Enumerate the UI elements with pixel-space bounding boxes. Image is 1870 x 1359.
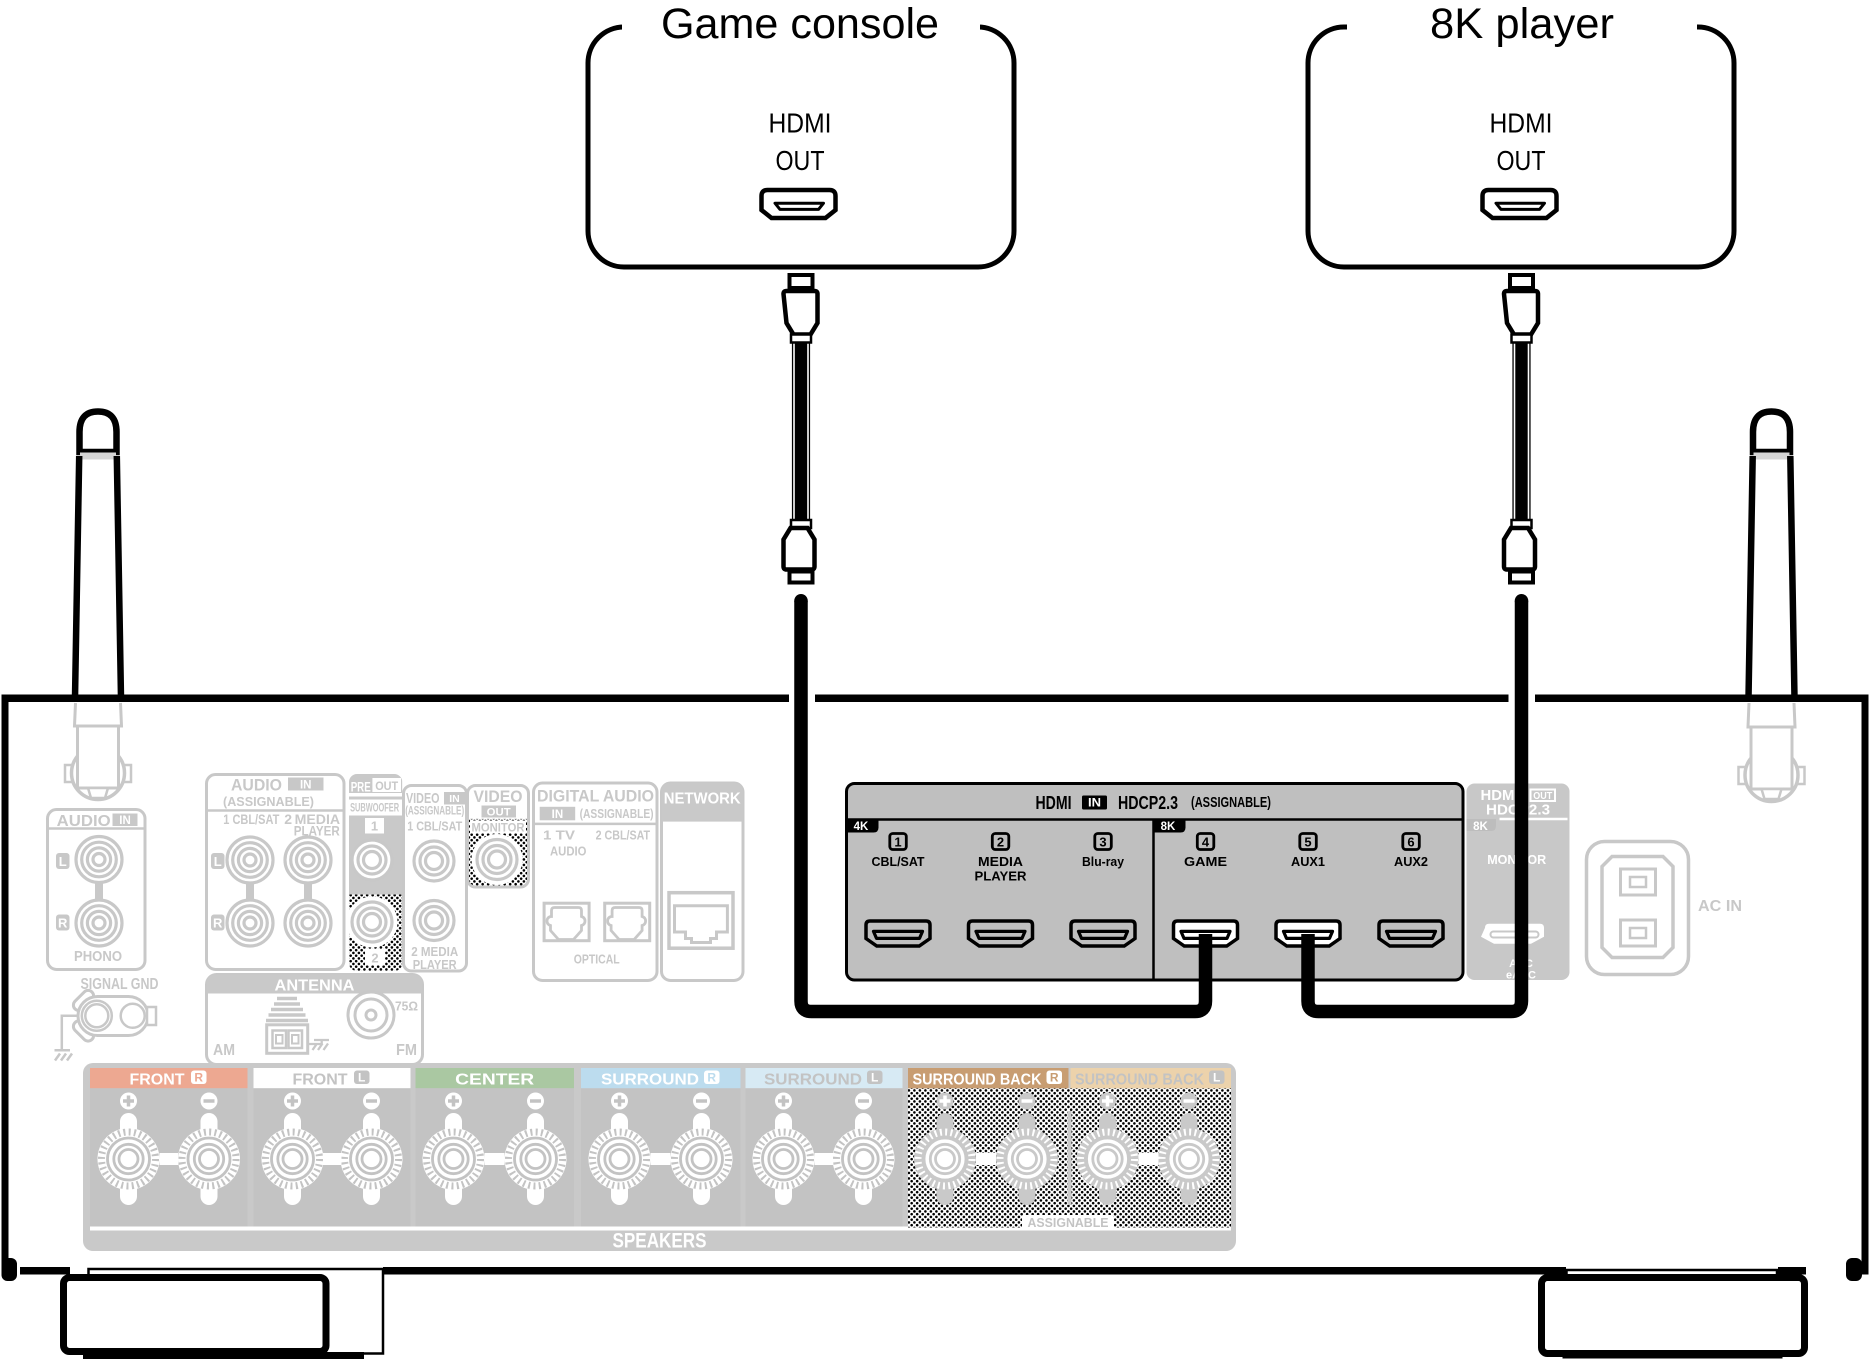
svg-text:4: 4 [1202,835,1210,850]
svg-text:75Ω: 75Ω [395,999,418,1014]
svg-text:IN: IN [449,793,460,805]
svg-text:2: 2 [284,811,292,827]
svg-text:SUBWOOFER: SUBWOOFER [350,803,399,815]
svg-text:1 CBL/SAT: 1 CBL/SAT [223,811,279,827]
svg-text:HDCP2.3: HDCP2.3 [1118,792,1178,813]
svg-text:5: 5 [1304,835,1311,850]
svg-text:HDMI: HDMI [1036,792,1072,813]
svg-text:IN: IN [552,809,564,821]
svg-text:MONITOR: MONITOR [472,823,526,835]
svg-text:2 MEDIA: 2 MEDIA [411,945,458,959]
svg-text:OUT: OUT [776,145,825,176]
svg-text:OUT: OUT [1497,145,1546,176]
svg-text:ASSIGNABLE: ASSIGNABLE [1028,1216,1109,1230]
svg-text:4K: 4K [854,821,869,833]
svg-text:(ASSIGNABLE): (ASSIGNABLE) [405,806,464,818]
svg-text:SURROUND BACK: SURROUND BACK [1075,1071,1204,1088]
svg-text:2: 2 [997,835,1004,850]
svg-text:OUT: OUT [487,807,511,819]
svg-text:OUT: OUT [1533,791,1552,802]
svg-text:FRONT: FRONT [293,1071,348,1088]
svg-text:PLAYER: PLAYER [413,958,457,972]
svg-text:(ASSIGNABLE): (ASSIGNABLE) [223,795,314,809]
svg-text:VIDEO: VIDEO [406,790,440,807]
svg-text:1 CBL/SAT: 1 CBL/SAT [407,820,462,834]
svg-text:SURROUND: SURROUND [601,1071,699,1088]
svg-text:L: L [358,1071,365,1085]
svg-text:NETWORK: NETWORK [664,791,742,808]
svg-text:CENTER: CENTER [455,1071,535,1088]
svg-text:L: L [214,854,222,869]
svg-text:R: R [58,916,68,931]
svg-text:3: 3 [1099,835,1106,850]
svg-text:R: R [1050,1071,1059,1085]
svg-text:AUX1: AUX1 [1291,854,1325,869]
svg-text:IN: IN [1088,798,1101,810]
svg-text:ANTENNA: ANTENNA [275,978,355,995]
svg-text:(ASSIGNABLE): (ASSIGNABLE) [1191,794,1271,811]
svg-text:GAME: GAME [1184,854,1227,869]
svg-text:AM: AM [213,1042,235,1059]
svg-text:IN: IN [300,780,312,792]
svg-text:R: R [707,1071,716,1085]
svg-text:R: R [213,916,223,931]
svg-text:(ASSIGNABLE): (ASSIGNABLE) [580,807,654,821]
svg-text:FRONT: FRONT [130,1071,185,1088]
svg-text:1: 1 [371,819,378,834]
svg-text:MEDIA: MEDIA [978,854,1024,869]
svg-text:Blu-ray: Blu-ray [1082,854,1125,869]
svg-text:SURROUND: SURROUND [764,1071,862,1088]
svg-text:PLAYER: PLAYER [975,869,1028,884]
svg-text:CBL/SAT: CBL/SAT [872,854,925,869]
svg-text:AUDIO: AUDIO [57,813,111,830]
svg-text:R: R [194,1071,203,1085]
svg-text:OUT: OUT [375,779,399,793]
svg-text:PLAYER: PLAYER [294,823,340,839]
svg-text:PHONO: PHONO [74,949,122,965]
svg-text:AUDIO: AUDIO [231,776,282,795]
svg-text:AUX2: AUX2 [1394,854,1428,869]
svg-text:SURROUND BACK: SURROUND BACK [913,1071,1042,1088]
svg-text:L: L [59,854,67,869]
svg-text:SPEAKERS: SPEAKERS [613,1230,707,1253]
svg-text:FM: FM [396,1042,417,1059]
svg-text:HDMI: HDMI [769,108,832,139]
svg-text:Game console: Game console [661,1,939,48]
svg-text:HDMI: HDMI [1490,108,1553,139]
svg-text:AC IN: AC IN [1698,898,1742,915]
svg-text:2: 2 [371,951,378,966]
svg-text:2 CBL/SAT: 2 CBL/SAT [596,829,651,843]
svg-text:PRE: PRE [351,780,371,795]
svg-text:8K: 8K [1473,821,1488,833]
svg-text:6: 6 [1407,835,1414,850]
svg-text:AUDIO: AUDIO [550,845,587,859]
svg-text:IN: IN [119,815,131,827]
svg-text:8K player: 8K player [1430,1,1614,48]
svg-text:OPTICAL: OPTICAL [574,953,620,967]
svg-text:8K: 8K [1161,821,1176,833]
svg-text:DIGITAL AUDIO: DIGITAL AUDIO [537,788,654,806]
svg-text:1: 1 [894,835,901,850]
svg-text:1 TV: 1 TV [543,829,576,843]
svg-text:L: L [871,1071,878,1085]
svg-text:L: L [1213,1071,1220,1085]
svg-text:VIDEO: VIDEO [474,788,523,806]
